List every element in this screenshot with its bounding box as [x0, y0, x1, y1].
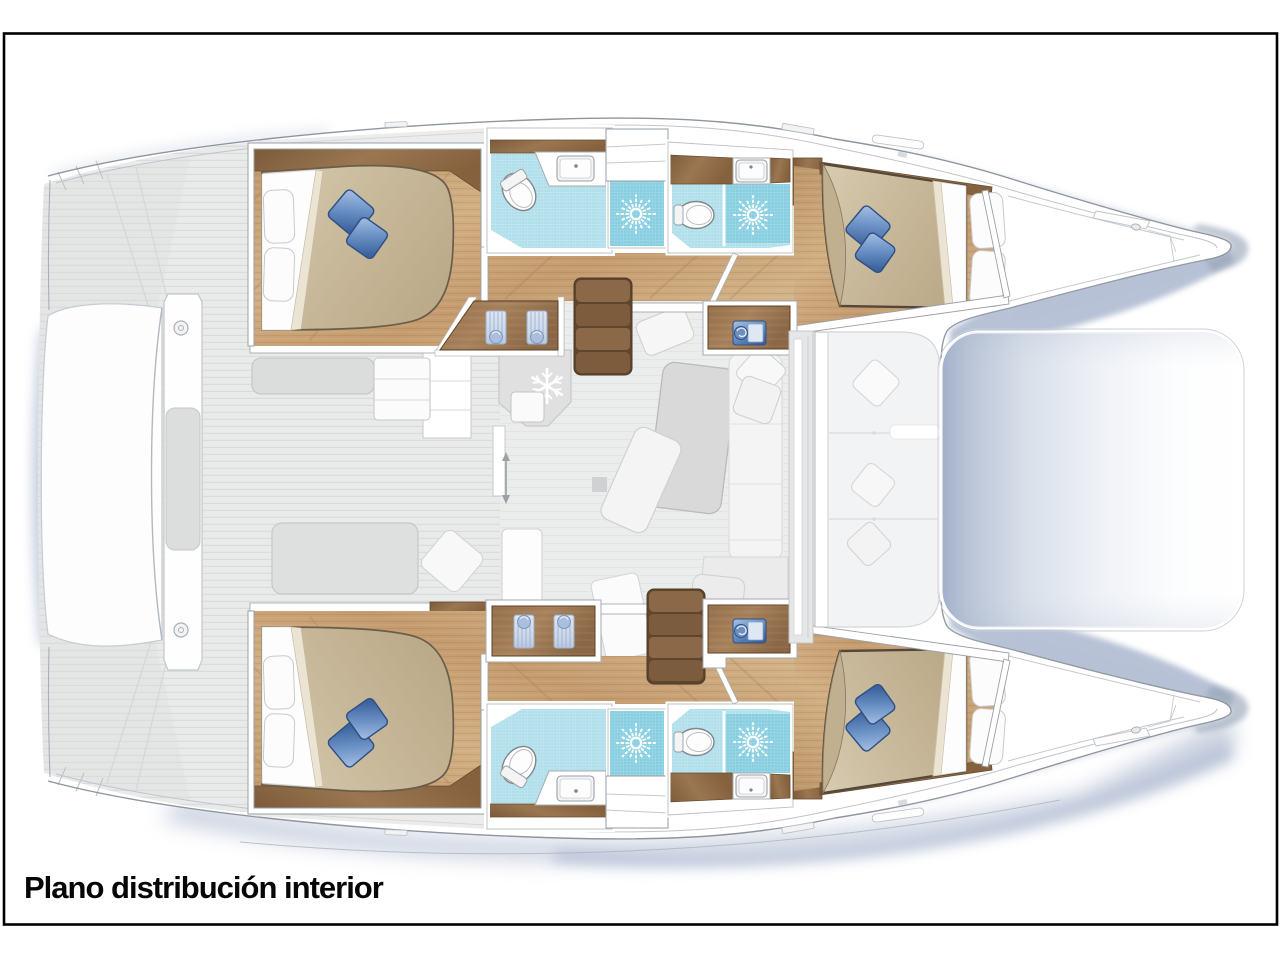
svg-text:Plano distribución interior: Plano distribución interior — [24, 870, 384, 905]
